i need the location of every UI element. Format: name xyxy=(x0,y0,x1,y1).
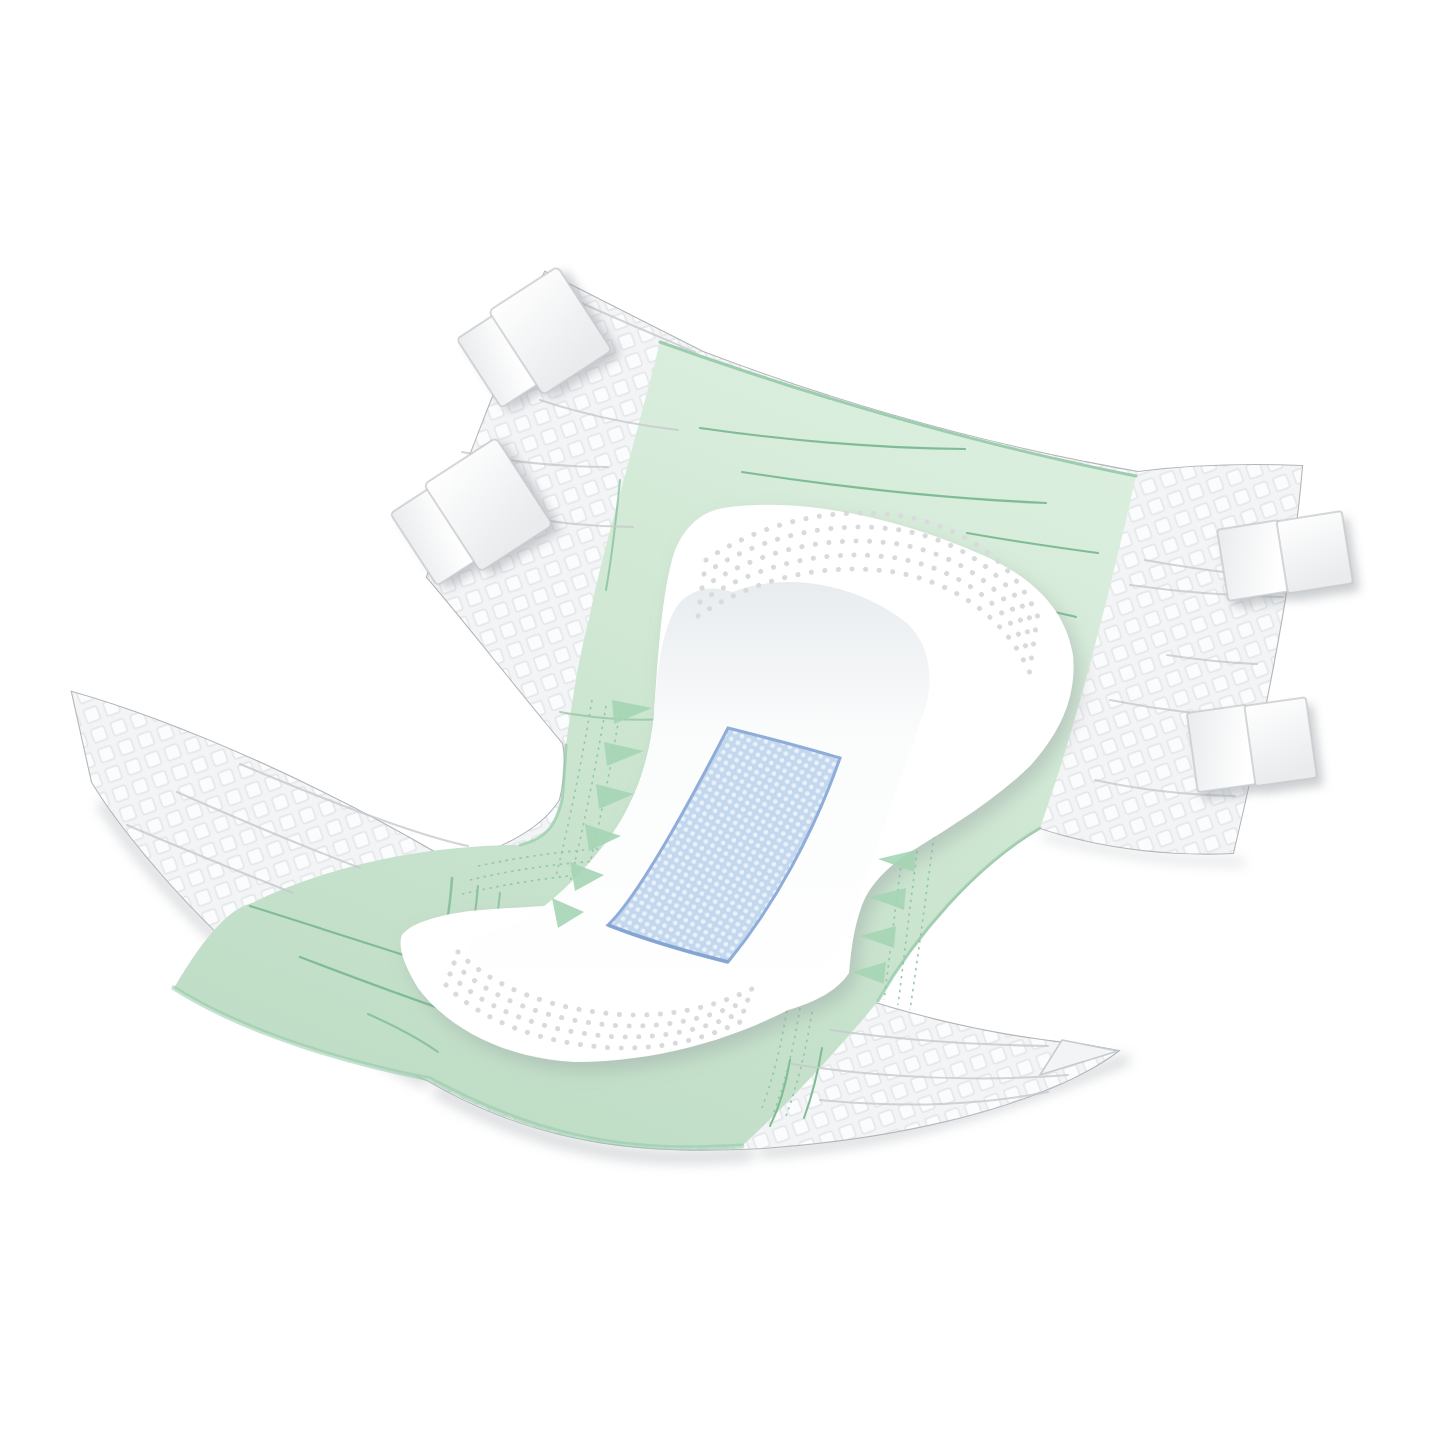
product-image xyxy=(0,0,1445,1445)
brief-product-illustration xyxy=(0,0,1445,1445)
tape-panel xyxy=(1276,511,1353,593)
tape-mid-right xyxy=(1187,696,1317,794)
tape-panel xyxy=(1244,697,1317,786)
